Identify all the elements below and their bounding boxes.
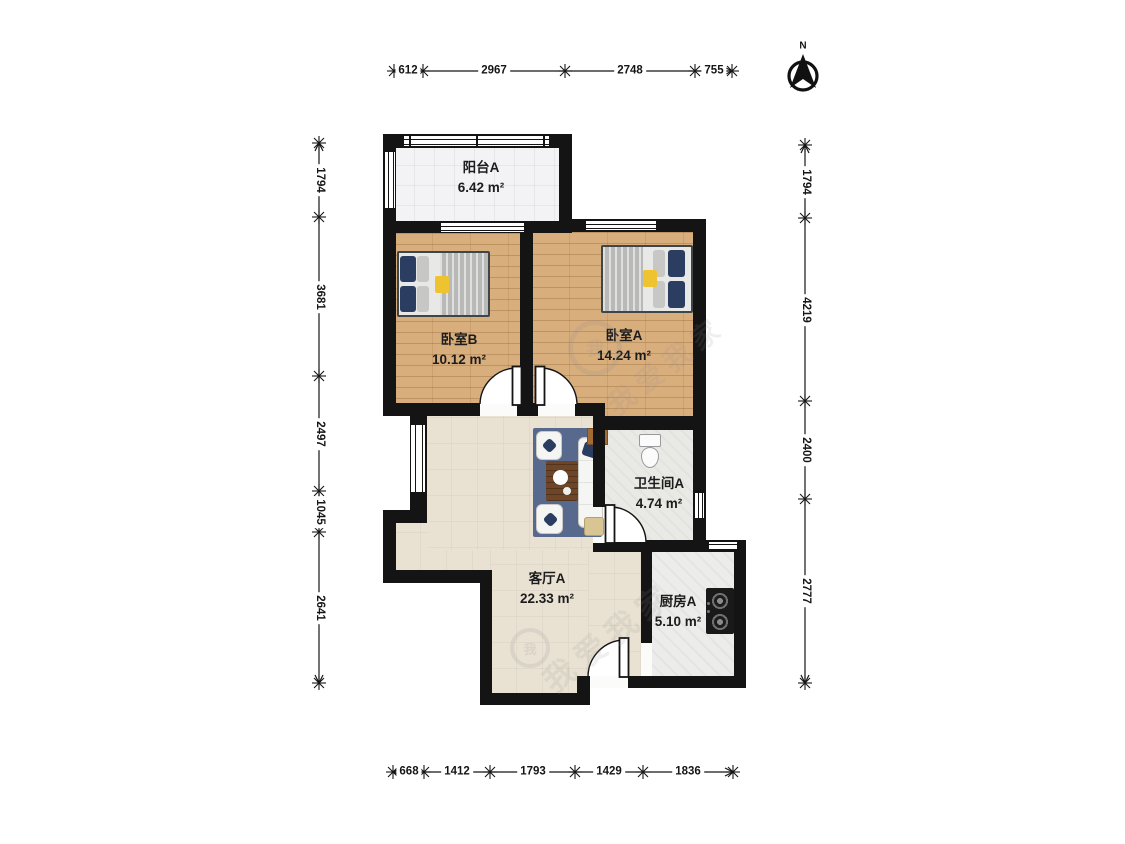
wall-segment <box>383 403 480 416</box>
wall-segment <box>593 416 706 430</box>
room-label-bedroom-b: 卧室B 10.12 m² <box>432 330 486 371</box>
bed-b-pillow <box>400 286 416 312</box>
bedroom-b-door-threshold <box>480 403 517 416</box>
dim-label: 2400 <box>798 434 812 466</box>
bed-b <box>397 251 490 317</box>
wall-segment <box>383 221 396 416</box>
wall-segment <box>517 403 538 416</box>
stove-knob <box>707 602 710 605</box>
room-name: 客厅A <box>520 569 574 589</box>
stove-burner <box>711 613 729 631</box>
wall-segment <box>480 570 492 705</box>
window-bathroom-right <box>694 492 705 519</box>
window-balcony-bedroom-b <box>440 222 525 233</box>
bed-a-pillow <box>668 250 685 277</box>
room-label-living: 客厅A 22.33 m² <box>520 569 574 610</box>
room-area: 6.42 m² <box>458 178 505 198</box>
armchair-pillow <box>543 512 559 528</box>
dim-label: 2967 <box>478 64 510 78</box>
window-divider <box>409 135 411 147</box>
room-name: 卧室A <box>597 326 651 346</box>
dim-label: 1836 <box>672 765 704 779</box>
wall-segment <box>383 570 492 583</box>
ottoman <box>584 517 604 536</box>
window-kitchen-top <box>708 541 738 551</box>
compass-icon <box>789 54 817 90</box>
room-area: 10.12 m² <box>432 350 486 370</box>
dim-label: 2748 <box>614 64 646 78</box>
armchair-pillow <box>542 438 558 454</box>
bed-b-accent <box>435 276 449 293</box>
room-area: 4.74 m² <box>634 494 684 514</box>
room-name: 卫生间A <box>634 474 684 494</box>
living-room-floor <box>588 550 644 678</box>
dim-label: 3681 <box>312 281 326 313</box>
dim-label: 2497 <box>312 418 326 450</box>
dim-label: 612 <box>395 64 420 78</box>
stove <box>706 588 734 634</box>
dim-label: 2777 <box>798 575 812 607</box>
armchair <box>536 431 562 460</box>
window-living-left <box>410 424 426 493</box>
dim-label: 4219 <box>798 294 812 326</box>
dim-label: 1429 <box>593 765 625 779</box>
room-area: 14.24 m² <box>597 346 651 366</box>
bed-b-pillow <box>417 286 429 312</box>
bed-b-pillow <box>417 256 429 282</box>
floor-plan-canvas: 阳台A 6.42 m² 卧室B 10.12 m² 卧室A 14.24 m² 卫生… <box>0 0 1125 844</box>
wall-segment <box>628 676 746 688</box>
bed-b-pillow <box>400 256 416 282</box>
armchair <box>536 504 563 534</box>
coffee-table <box>546 461 578 501</box>
dim-label: 1794 <box>798 166 812 198</box>
living-room-floor <box>394 550 494 572</box>
entrance-door-threshold <box>590 676 628 688</box>
wall-segment <box>480 693 590 705</box>
dim-label: 1412 <box>441 765 473 779</box>
dim-label: 755 <box>701 64 726 78</box>
room-name: 阳台A <box>458 158 505 178</box>
bed-a-accent <box>643 270 657 287</box>
window-divider <box>543 135 545 147</box>
wall-segment <box>593 416 605 507</box>
bed-a-blanket <box>603 247 643 311</box>
kitchen-opening-threshold <box>641 643 652 676</box>
bed-a-pillow <box>668 281 685 308</box>
dim-label: 1793 <box>517 765 549 779</box>
room-area: 5.10 m² <box>655 612 702 632</box>
room-label-bedroom-a: 卧室A 14.24 m² <box>597 326 651 367</box>
stove-burner <box>711 592 729 610</box>
bedroom-a-door-threshold <box>538 403 575 416</box>
room-name: 卧室B <box>432 330 486 350</box>
wall-segment <box>575 403 605 416</box>
wall-segment <box>593 543 605 552</box>
window-divider <box>476 135 478 147</box>
compass-north-label: N <box>799 41 806 52</box>
stove-knob <box>707 610 710 613</box>
room-name: 厨房A <box>655 592 702 612</box>
room-label-bathroom: 卫生间A 4.74 m² <box>634 474 684 515</box>
table-plate <box>553 470 568 485</box>
window-balcony-left <box>384 151 396 209</box>
toilet-tank <box>639 434 661 447</box>
room-label-kitchen: 厨房A 5.10 m² <box>655 592 702 633</box>
room-label-balcony: 阳台A 6.42 m² <box>458 158 505 199</box>
room-area: 22.33 m² <box>520 589 574 609</box>
bed-a <box>601 245 693 313</box>
dim-label: 2641 <box>312 592 326 624</box>
wall-segment <box>641 552 652 643</box>
window-bedroom-a-top <box>585 220 657 231</box>
wall-segment <box>520 221 533 416</box>
dim-label: 668 <box>396 765 421 779</box>
wall-segment <box>734 540 746 688</box>
dim-label: 1045 <box>312 496 326 528</box>
dim-label: 1794 <box>312 164 326 196</box>
table-cup <box>563 487 571 495</box>
